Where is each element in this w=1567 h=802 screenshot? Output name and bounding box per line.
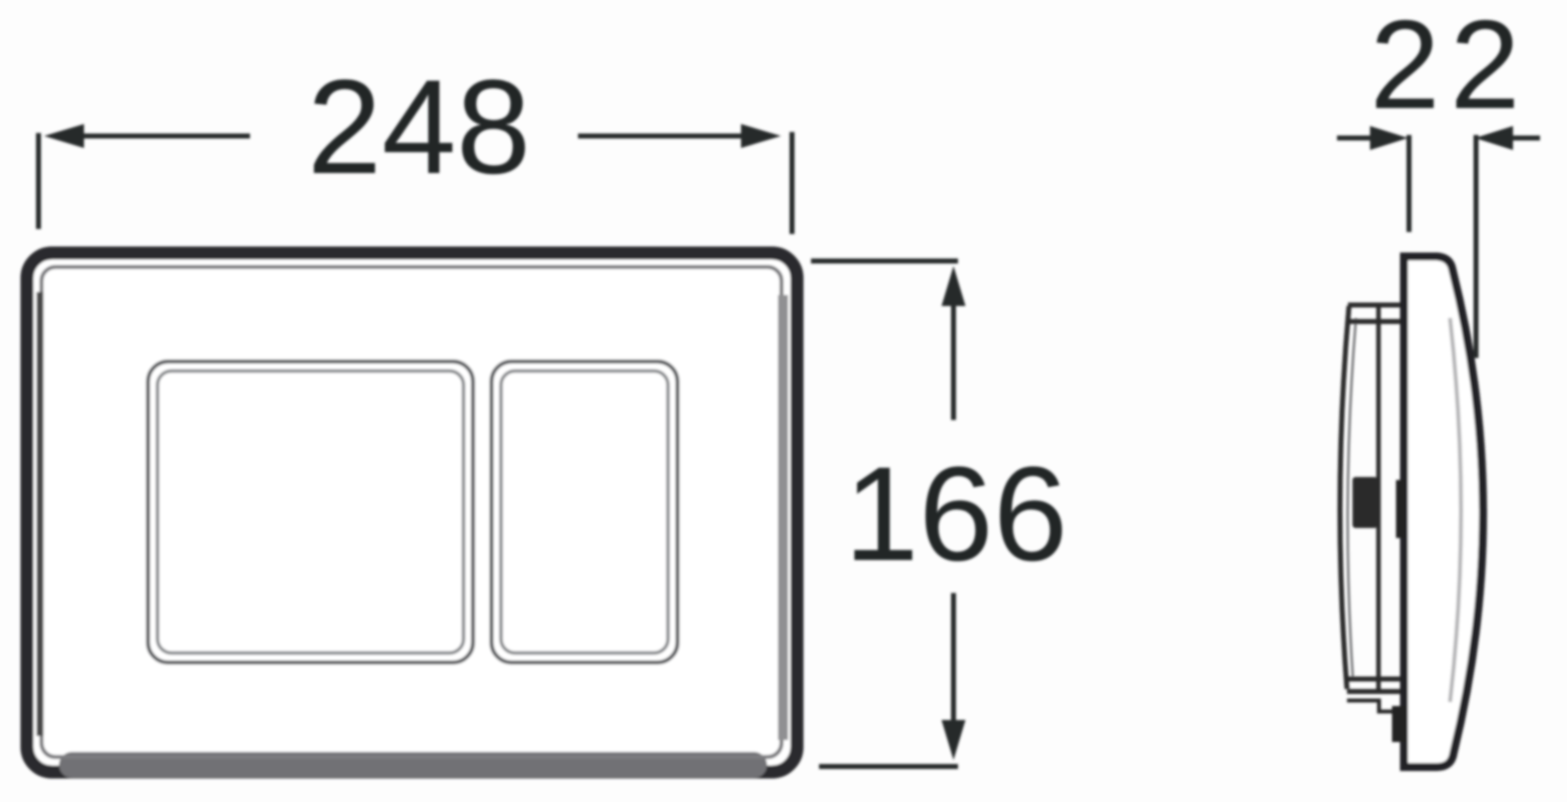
svg-text:22: 22 xyxy=(1370,0,1530,135)
svg-text:248: 248 xyxy=(307,53,531,202)
svg-text:166: 166 xyxy=(844,440,1068,589)
